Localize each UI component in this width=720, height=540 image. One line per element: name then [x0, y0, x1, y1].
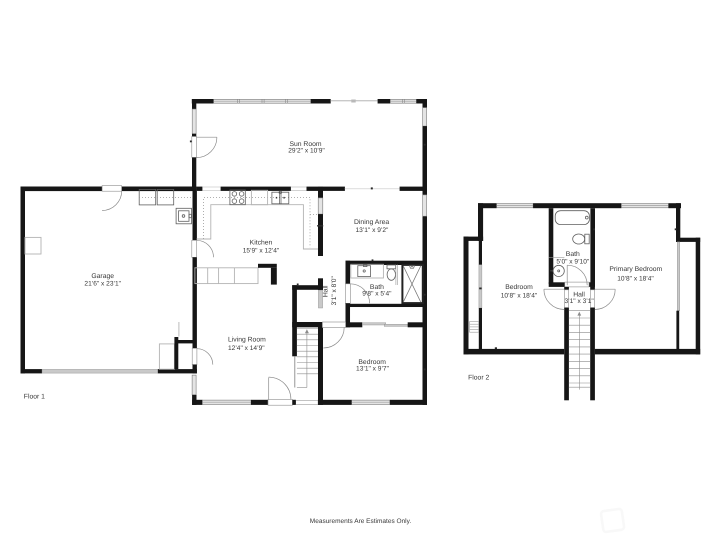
svg-text:Primary Bedroom: Primary Bedroom — [609, 266, 662, 273]
svg-text:21’6" x 23’1": 21’6" x 23’1" — [84, 280, 121, 287]
svg-text:9’8" x 5’4": 9’8" x 5’4" — [362, 290, 392, 297]
svg-text:13’1" x 9’7": 13’1" x 9’7" — [356, 366, 390, 373]
svg-text:Kitchen: Kitchen — [250, 239, 273, 246]
svg-text:Garage: Garage — [91, 273, 114, 280]
svg-text:12’4" x 14’9": 12’4" x 14’9" — [228, 345, 265, 352]
svg-text:Bath: Bath — [566, 251, 580, 258]
svg-text:Living Room: Living Room — [228, 336, 266, 343]
svg-text:29’2" x 10’9": 29’2" x 10’9" — [288, 148, 325, 155]
svg-text:10’8" x 18’4": 10’8" x 18’4" — [617, 275, 654, 282]
svg-text:15’9" x 12’4": 15’9" x 12’4" — [243, 247, 280, 254]
svg-text:5’0" x 9’10": 5’0" x 9’10" — [556, 258, 590, 265]
svg-text:Hall: Hall — [323, 285, 330, 297]
svg-text:Bedroom: Bedroom — [505, 284, 533, 291]
svg-text:Floor 1: Floor 1 — [24, 394, 45, 401]
svg-text:13’1" x 9’2": 13’1" x 9’2" — [355, 227, 389, 234]
svg-text:10’8" x 18’4": 10’8" x 18’4" — [501, 292, 538, 299]
svg-text:3’1" x 3’1": 3’1" x 3’1" — [564, 298, 594, 305]
svg-text:3’1" x 8’0": 3’1" x 8’0" — [331, 276, 338, 306]
svg-text:Dining Area: Dining Area — [354, 219, 389, 226]
svg-text:Floor 2: Floor 2 — [468, 374, 489, 381]
svg-text:Measurements Are Estimates Onl: Measurements Are Estimates Only. — [310, 518, 412, 525]
